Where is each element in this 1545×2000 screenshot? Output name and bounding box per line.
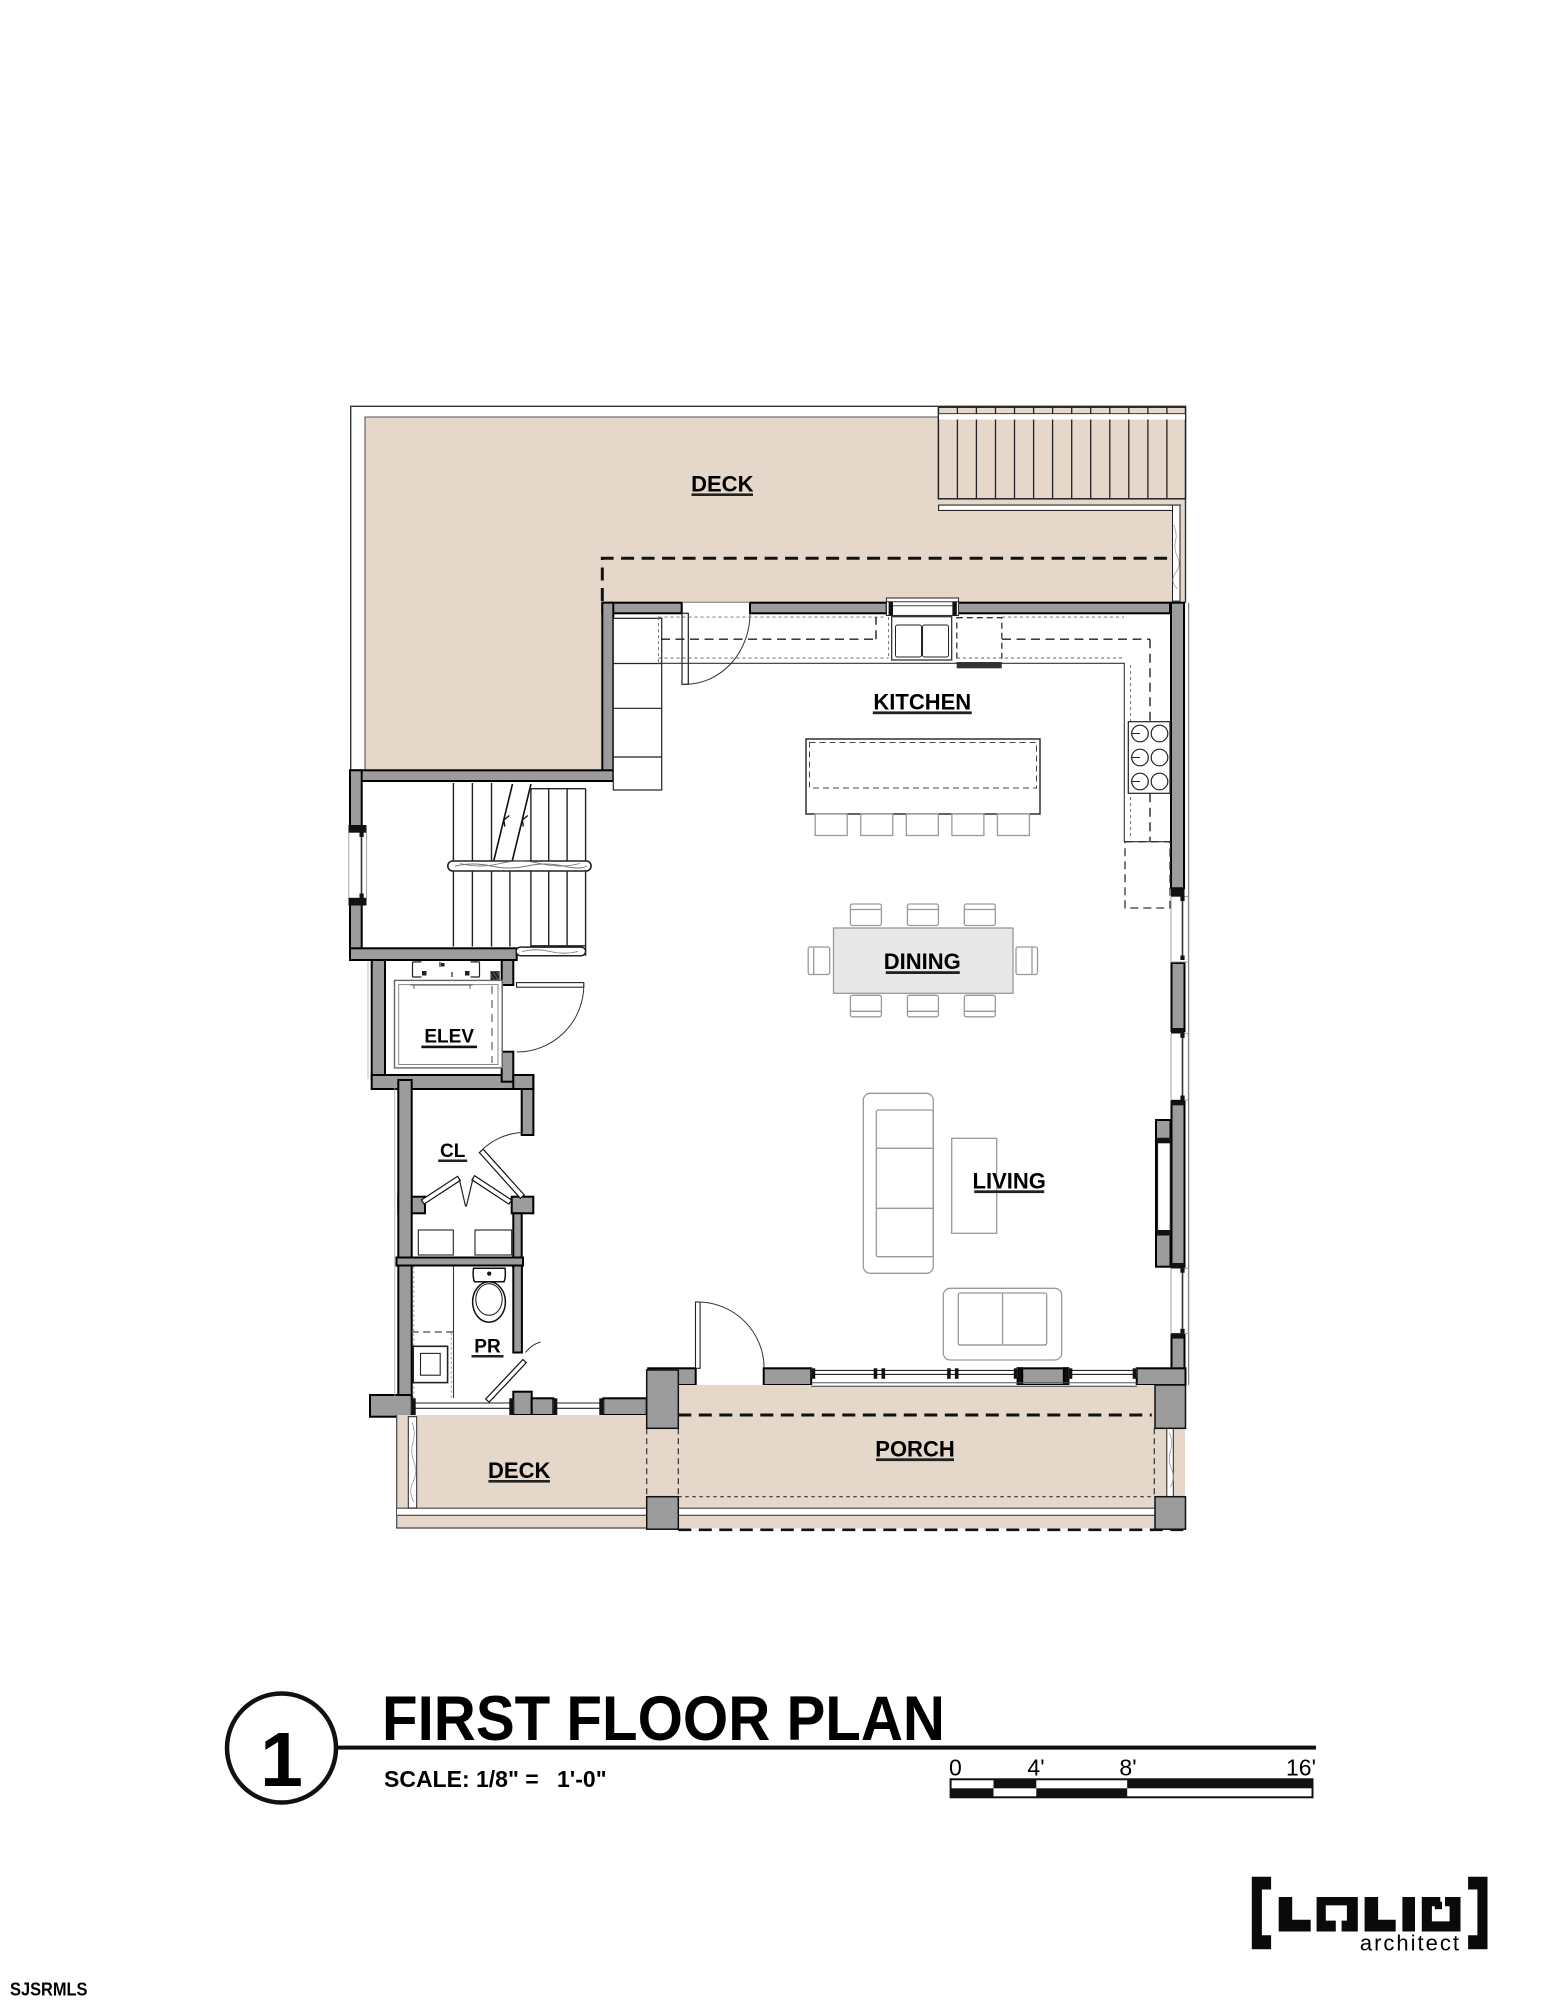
svg-text:SJSRMLS: SJSRMLS [10, 1979, 88, 2000]
svg-text:0: 0 [949, 1755, 962, 1781]
svg-text:LIVING: LIVING [973, 1168, 1046, 1193]
svg-text:DINING: DINING [884, 949, 961, 974]
svg-text:1'-0": 1'-0" [557, 1766, 607, 1792]
svg-text:8': 8' [1119, 1755, 1136, 1781]
svg-text:KITCHEN: KITCHEN [873, 689, 971, 714]
svg-text:PR: PR [474, 1337, 501, 1358]
svg-text:4': 4' [1027, 1755, 1044, 1781]
svg-text:1: 1 [260, 1717, 303, 1803]
svg-text:DECK: DECK [488, 1458, 550, 1483]
svg-text:SCALE: 1/8" =: SCALE: 1/8" = [384, 1766, 539, 1792]
svg-text:16': 16' [1286, 1755, 1316, 1781]
svg-text:ELEV: ELEV [424, 1027, 474, 1048]
svg-text:DECK: DECK [691, 472, 753, 497]
svg-text:PORCH: PORCH [875, 1436, 954, 1461]
svg-text:CL: CL [440, 1141, 466, 1162]
svg-text:FIRST FLOOR PLAN: FIRST FLOOR PLAN [382, 1684, 945, 1754]
svg-text:architect: architect [1360, 1931, 1461, 1956]
